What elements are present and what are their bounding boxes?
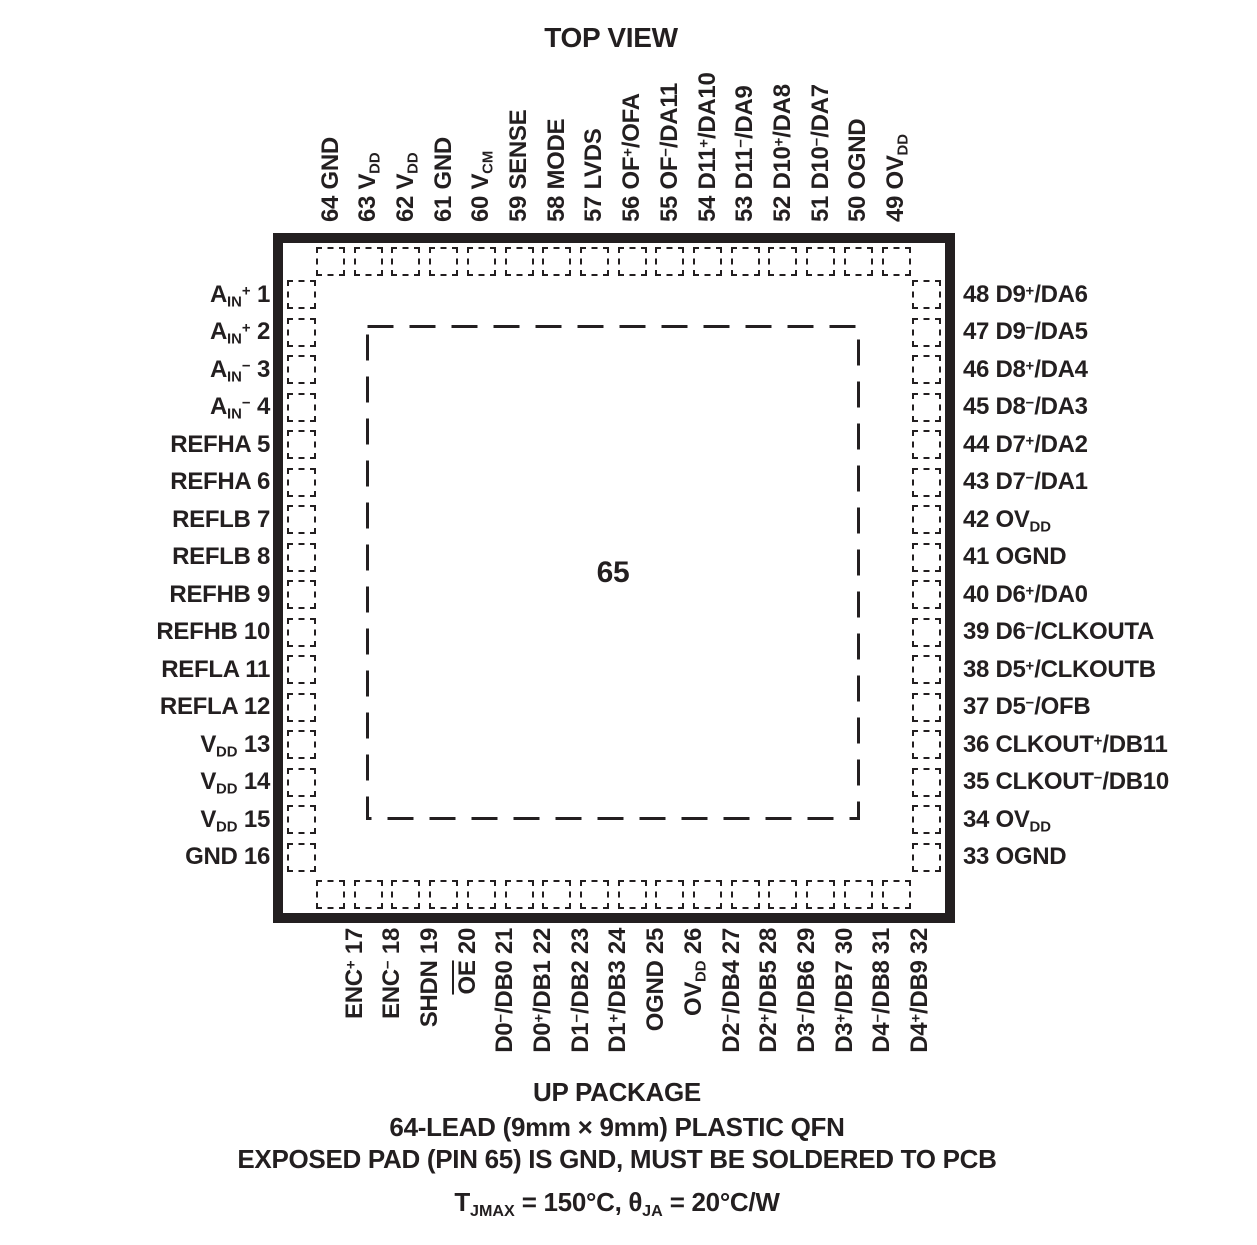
pin-label-19: SHDN 19 bbox=[418, 928, 442, 1027]
pin-label-28: D2+/DB5 28 bbox=[757, 928, 781, 1053]
package-name-label: UP PACKAGE bbox=[0, 1077, 1234, 1107]
exposed-pad-note: EXPOSED PAD (PIN 65) IS GND, MUST BE SOL… bbox=[0, 1144, 1234, 1174]
pin-label-49: 49 OVDD bbox=[884, 134, 908, 222]
pin-pad-20 bbox=[429, 880, 458, 909]
pin-label-20: OE 20 bbox=[456, 928, 480, 995]
pin-pad-22 bbox=[505, 880, 534, 909]
pin-label-15: VDD 15 bbox=[200, 806, 270, 834]
pin-pad-19 bbox=[391, 880, 420, 909]
pin-label-11: REFLA 11 bbox=[161, 656, 270, 684]
pin-label-3: AIN− 3 bbox=[210, 356, 270, 384]
pin-pad-9 bbox=[287, 580, 316, 609]
pin-label-41: 41 OGND bbox=[963, 543, 1066, 571]
pin-label-29: D3−/DB6 29 bbox=[795, 928, 819, 1053]
pin-label-45: 45 D8−/DA3 bbox=[963, 393, 1088, 421]
pin-label-48: 48 D9+/DA6 bbox=[963, 281, 1088, 309]
pin-pad-30 bbox=[806, 880, 835, 909]
pin-label-33: 33 OGND bbox=[963, 843, 1066, 871]
pin-pad-18 bbox=[354, 880, 383, 909]
diagram-title: TOP VIEW bbox=[0, 22, 1222, 54]
pin-pad-6 bbox=[287, 468, 316, 497]
pin-label-16: GND 16 bbox=[185, 843, 270, 871]
pin-pad-11 bbox=[287, 655, 316, 684]
pin-label-53: 53 D11−/DA9 bbox=[733, 86, 757, 222]
pin-label-58: 58 MODE bbox=[545, 119, 569, 222]
pin-label-10: REFHB 10 bbox=[156, 618, 270, 646]
pin-label-27: D2−/DB4 27 bbox=[720, 928, 744, 1053]
pin-pad-25 bbox=[618, 880, 647, 909]
pin-pad-15 bbox=[287, 805, 316, 834]
pin-pad-17 bbox=[316, 880, 345, 909]
pin-pad-8 bbox=[287, 543, 316, 572]
pin-pad-51 bbox=[806, 247, 835, 276]
pin-pad-2 bbox=[287, 318, 316, 347]
pin-label-2: AIN+ 2 bbox=[210, 318, 270, 346]
pin-pad-23 bbox=[542, 880, 571, 909]
pin-label-64: 64 GND bbox=[319, 137, 343, 222]
pin-label-1: AIN+ 1 bbox=[210, 281, 270, 309]
pin-pad-29 bbox=[768, 880, 797, 909]
pin-pad-34 bbox=[912, 805, 941, 834]
pin-pad-41 bbox=[912, 543, 941, 572]
pin-label-18: ENC− 18 bbox=[380, 928, 404, 1019]
pin-label-57: 57 LVDS bbox=[582, 129, 606, 223]
pin-label-34: 34 OVDD bbox=[963, 806, 1051, 834]
pin-pad-62 bbox=[391, 247, 420, 276]
pin-label-35: 35 CLKOUT−/DB10 bbox=[963, 768, 1169, 796]
pin-pad-64 bbox=[316, 247, 345, 276]
pin-pad-49 bbox=[882, 247, 911, 276]
pin-label-5: REFHA 5 bbox=[170, 431, 270, 459]
pin-pad-46 bbox=[912, 355, 941, 384]
pin-pad-45 bbox=[912, 393, 941, 422]
pin-label-62: 62 VDD bbox=[394, 152, 418, 222]
pin-label-46: 46 D8+/DA4 bbox=[963, 356, 1088, 384]
pin-label-14: VDD 14 bbox=[200, 768, 270, 796]
pin-pad-50 bbox=[844, 247, 873, 276]
pin-pad-14 bbox=[287, 768, 316, 797]
pin-label-4: AIN− 4 bbox=[210, 393, 270, 421]
pin-pad-26 bbox=[655, 880, 684, 909]
pin-label-9: REFHB 9 bbox=[169, 581, 270, 609]
pin-label-39: 39 D6−/CLKOUTA bbox=[963, 618, 1154, 646]
pin-pad-40 bbox=[912, 580, 941, 609]
pin-pad-1 bbox=[287, 280, 316, 309]
pin-pad-44 bbox=[912, 430, 941, 459]
pin-label-54: 54 D11+/DA10 bbox=[696, 73, 720, 223]
pin-pad-16 bbox=[287, 843, 316, 872]
pin-pad-43 bbox=[912, 468, 941, 497]
pin-pad-60 bbox=[467, 247, 496, 276]
pin-label-51: 51 D10−/DA7 bbox=[809, 84, 833, 222]
pin-label-60: 60 VCM bbox=[469, 151, 493, 222]
pin-pad-3 bbox=[287, 355, 316, 384]
pin-label-13: VDD 13 bbox=[200, 731, 270, 759]
pin-label-55: 55 OF−/DA11 bbox=[658, 83, 682, 222]
pin-label-50: 50 OGND bbox=[846, 119, 870, 222]
pin-pad-58 bbox=[542, 247, 571, 276]
pin-pad-5 bbox=[287, 430, 316, 459]
package-outline: 65 bbox=[273, 233, 955, 923]
pin-label-23: D1−/DB2 23 bbox=[569, 928, 593, 1053]
pin-pad-31 bbox=[844, 880, 873, 909]
pin-label-25: OGND 25 bbox=[644, 928, 668, 1031]
pin-pad-52 bbox=[768, 247, 797, 276]
pin-pad-56 bbox=[618, 247, 647, 276]
pin-label-7: REFLB 7 bbox=[172, 506, 270, 534]
pin-label-59: 59 SENSE bbox=[507, 110, 531, 222]
pin-label-47: 47 D9−/DA5 bbox=[963, 318, 1088, 346]
pin-pad-12 bbox=[287, 693, 316, 722]
pin-label-6: REFHA 6 bbox=[170, 468, 270, 496]
pin-label-42: 42 OVDD bbox=[963, 506, 1051, 534]
pin-label-52: 52 D10+/DA8 bbox=[771, 84, 795, 222]
pin-pad-4 bbox=[287, 393, 316, 422]
pin-label-63: 63 VDD bbox=[356, 152, 380, 222]
pin-label-22: D0+/DB1 22 bbox=[531, 928, 555, 1053]
pin-pad-7 bbox=[287, 505, 316, 534]
pin-pad-27 bbox=[693, 880, 722, 909]
pin-pad-24 bbox=[580, 880, 609, 909]
pin-pad-35 bbox=[912, 768, 941, 797]
thermal-note: TJMAX = 150°C, θJA = 20°C/W bbox=[0, 1187, 1234, 1217]
pin-label-30: D3+/DB7 30 bbox=[833, 928, 857, 1053]
pin-label-38: 38 D5+/CLKOUTB bbox=[963, 656, 1156, 684]
pin-pad-57 bbox=[580, 247, 609, 276]
pin-pad-42 bbox=[912, 505, 941, 534]
pin-pad-54 bbox=[693, 247, 722, 276]
pin-label-56: 56 OF+/OFA bbox=[620, 93, 644, 222]
pin-pad-53 bbox=[731, 247, 760, 276]
pin-pad-33 bbox=[912, 843, 941, 872]
pin-pad-59 bbox=[505, 247, 534, 276]
pin-label-32: D4+/DB9 32 bbox=[908, 928, 932, 1053]
pin-pad-37 bbox=[912, 693, 941, 722]
pin-pad-21 bbox=[467, 880, 496, 909]
pin-pad-48 bbox=[912, 280, 941, 309]
pin-label-17: ENC+ 17 bbox=[343, 928, 367, 1019]
pin-label-12: REFLA 12 bbox=[160, 693, 270, 721]
exposed-pad-number: 65 bbox=[366, 325, 860, 820]
pin-pad-10 bbox=[287, 618, 316, 647]
package-type-label: 64-LEAD (9mm × 9mm) PLASTIC QFN bbox=[0, 1112, 1234, 1142]
pin-pad-36 bbox=[912, 730, 941, 759]
pin-pad-63 bbox=[354, 247, 383, 276]
pin-pad-38 bbox=[912, 655, 941, 684]
pin-label-61: 61 GND bbox=[432, 137, 456, 222]
pin-pad-55 bbox=[655, 247, 684, 276]
pin-label-8: REFLB 8 bbox=[172, 543, 270, 571]
pin-label-37: 37 D5−/OFB bbox=[963, 693, 1090, 721]
pin-pad-13 bbox=[287, 730, 316, 759]
pin-pad-47 bbox=[912, 318, 941, 347]
pin-label-21: D0−/DB0 21 bbox=[493, 928, 517, 1053]
pin-pad-39 bbox=[912, 618, 941, 647]
pin-label-40: 40 D6+/DA0 bbox=[963, 581, 1088, 609]
pin-label-44: 44 D7+/DA2 bbox=[963, 431, 1088, 459]
pin-pad-28 bbox=[731, 880, 760, 909]
pin-label-31: D4−/DB8 31 bbox=[870, 928, 894, 1053]
pin-label-43: 43 D7−/DA1 bbox=[963, 468, 1088, 496]
pin-pad-61 bbox=[429, 247, 458, 276]
pin-label-26: OVDD 26 bbox=[682, 928, 706, 1016]
pin-label-24: D1+/DB3 24 bbox=[606, 928, 630, 1053]
pin-pad-32 bbox=[882, 880, 911, 909]
pin-label-36: 36 CLKOUT+/DB11 bbox=[963, 731, 1168, 759]
